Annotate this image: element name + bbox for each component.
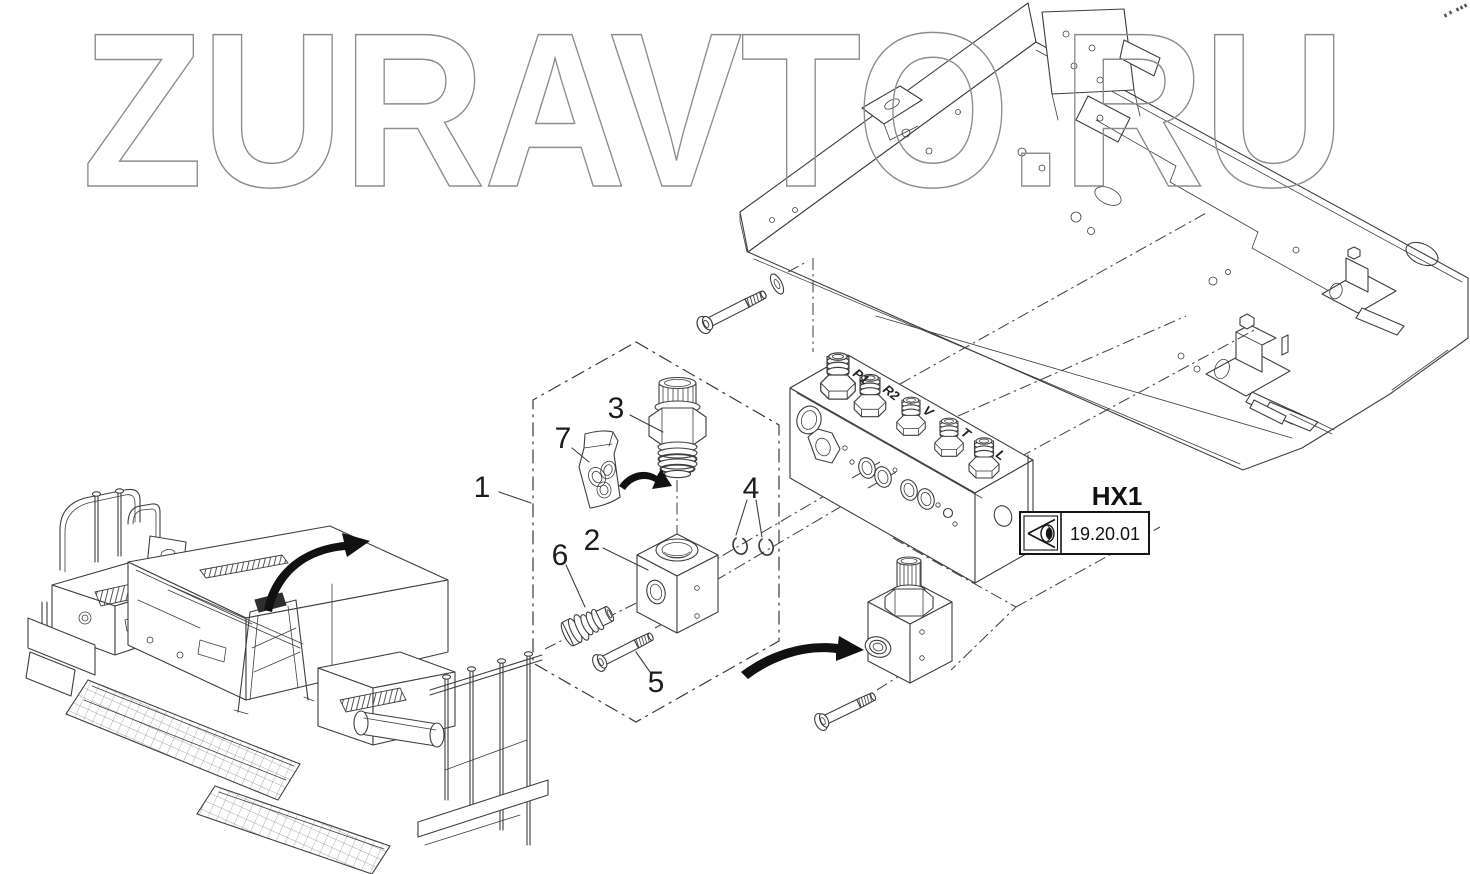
callout-1: 1	[474, 471, 491, 504]
callout-7: 7	[555, 422, 572, 455]
cartridge-valve-item3	[649, 378, 706, 553]
reference-sheet: 19.20.01	[1070, 524, 1140, 544]
exploded-view-group: 1 2 3 4 5 6 7	[474, 342, 779, 722]
callout-6: 6	[552, 539, 569, 572]
callout-4: 4	[743, 472, 760, 505]
manifold-block: P1 R2 V T L	[790, 353, 1033, 583]
seal-kit-item7	[579, 431, 620, 508]
reference-code: HX1	[1092, 481, 1143, 511]
corner-marks	[1444, 3, 1468, 17]
group-boundary	[533, 342, 779, 722]
valve-body-item2	[637, 534, 718, 633]
group-to-valve-arrow	[741, 636, 864, 679]
diagram-canvas: ZURAVTO.RU	[0, 0, 1470, 874]
callout-leaders	[499, 415, 762, 672]
reference-callout: HX1 19.20.01	[1020, 455, 1149, 554]
callout-5: 5	[648, 666, 665, 699]
fitting-item6	[558, 600, 617, 648]
mounting-bolt-top	[694, 272, 786, 336]
callout-2: 2	[584, 524, 601, 557]
parts-catalog-page: ZURAVTO.RU	[0, 0, 1470, 874]
machine-drawing	[26, 489, 548, 874]
o-rings-item4	[733, 538, 773, 555]
watermark-text: ZURAVTO.RU	[82, 0, 1344, 233]
callout-3: 3	[608, 392, 625, 425]
